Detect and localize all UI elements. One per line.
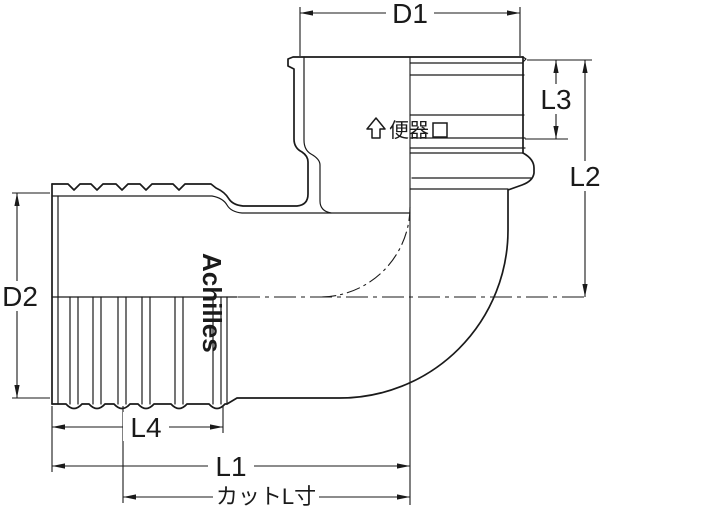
dim-label-l4: L4 [130,412,161,443]
dimension-lines [12,7,592,503]
pipe-top-inner-line [52,196,410,213]
dim-label-l3: L3 [540,84,571,115]
dim-label-d2: D2 [2,281,38,312]
drawing-canvas: D1 D2 L3 L2 L4 L1 カットL寸 便器 Achilles [0,0,720,513]
dim-label-cut-length: カットL寸 [216,484,316,509]
fitting-outline [52,57,534,409]
dim-label-l1: L1 [215,451,246,482]
up-arrow-icon [367,118,385,138]
dimension-arrows [14,10,587,499]
elbow-fitting-diagram: D1 D2 L3 L2 L4 L1 カットL寸 便器 Achilles [0,0,720,513]
pipe-top-and-riser-left-wall [52,57,523,206]
brand-logo-text: Achilles [197,253,227,353]
elbow-outer-contour [52,153,534,409]
small-square-icon [433,123,447,137]
orientation-label: 便器 [389,119,429,142]
bend-centerline [320,207,410,297]
dimension-labels: D1 D2 L3 L2 L4 L1 カットL寸 [2,0,600,509]
dim-label-l2: L2 [569,161,600,192]
dim-label-d1: D1 [392,0,428,29]
